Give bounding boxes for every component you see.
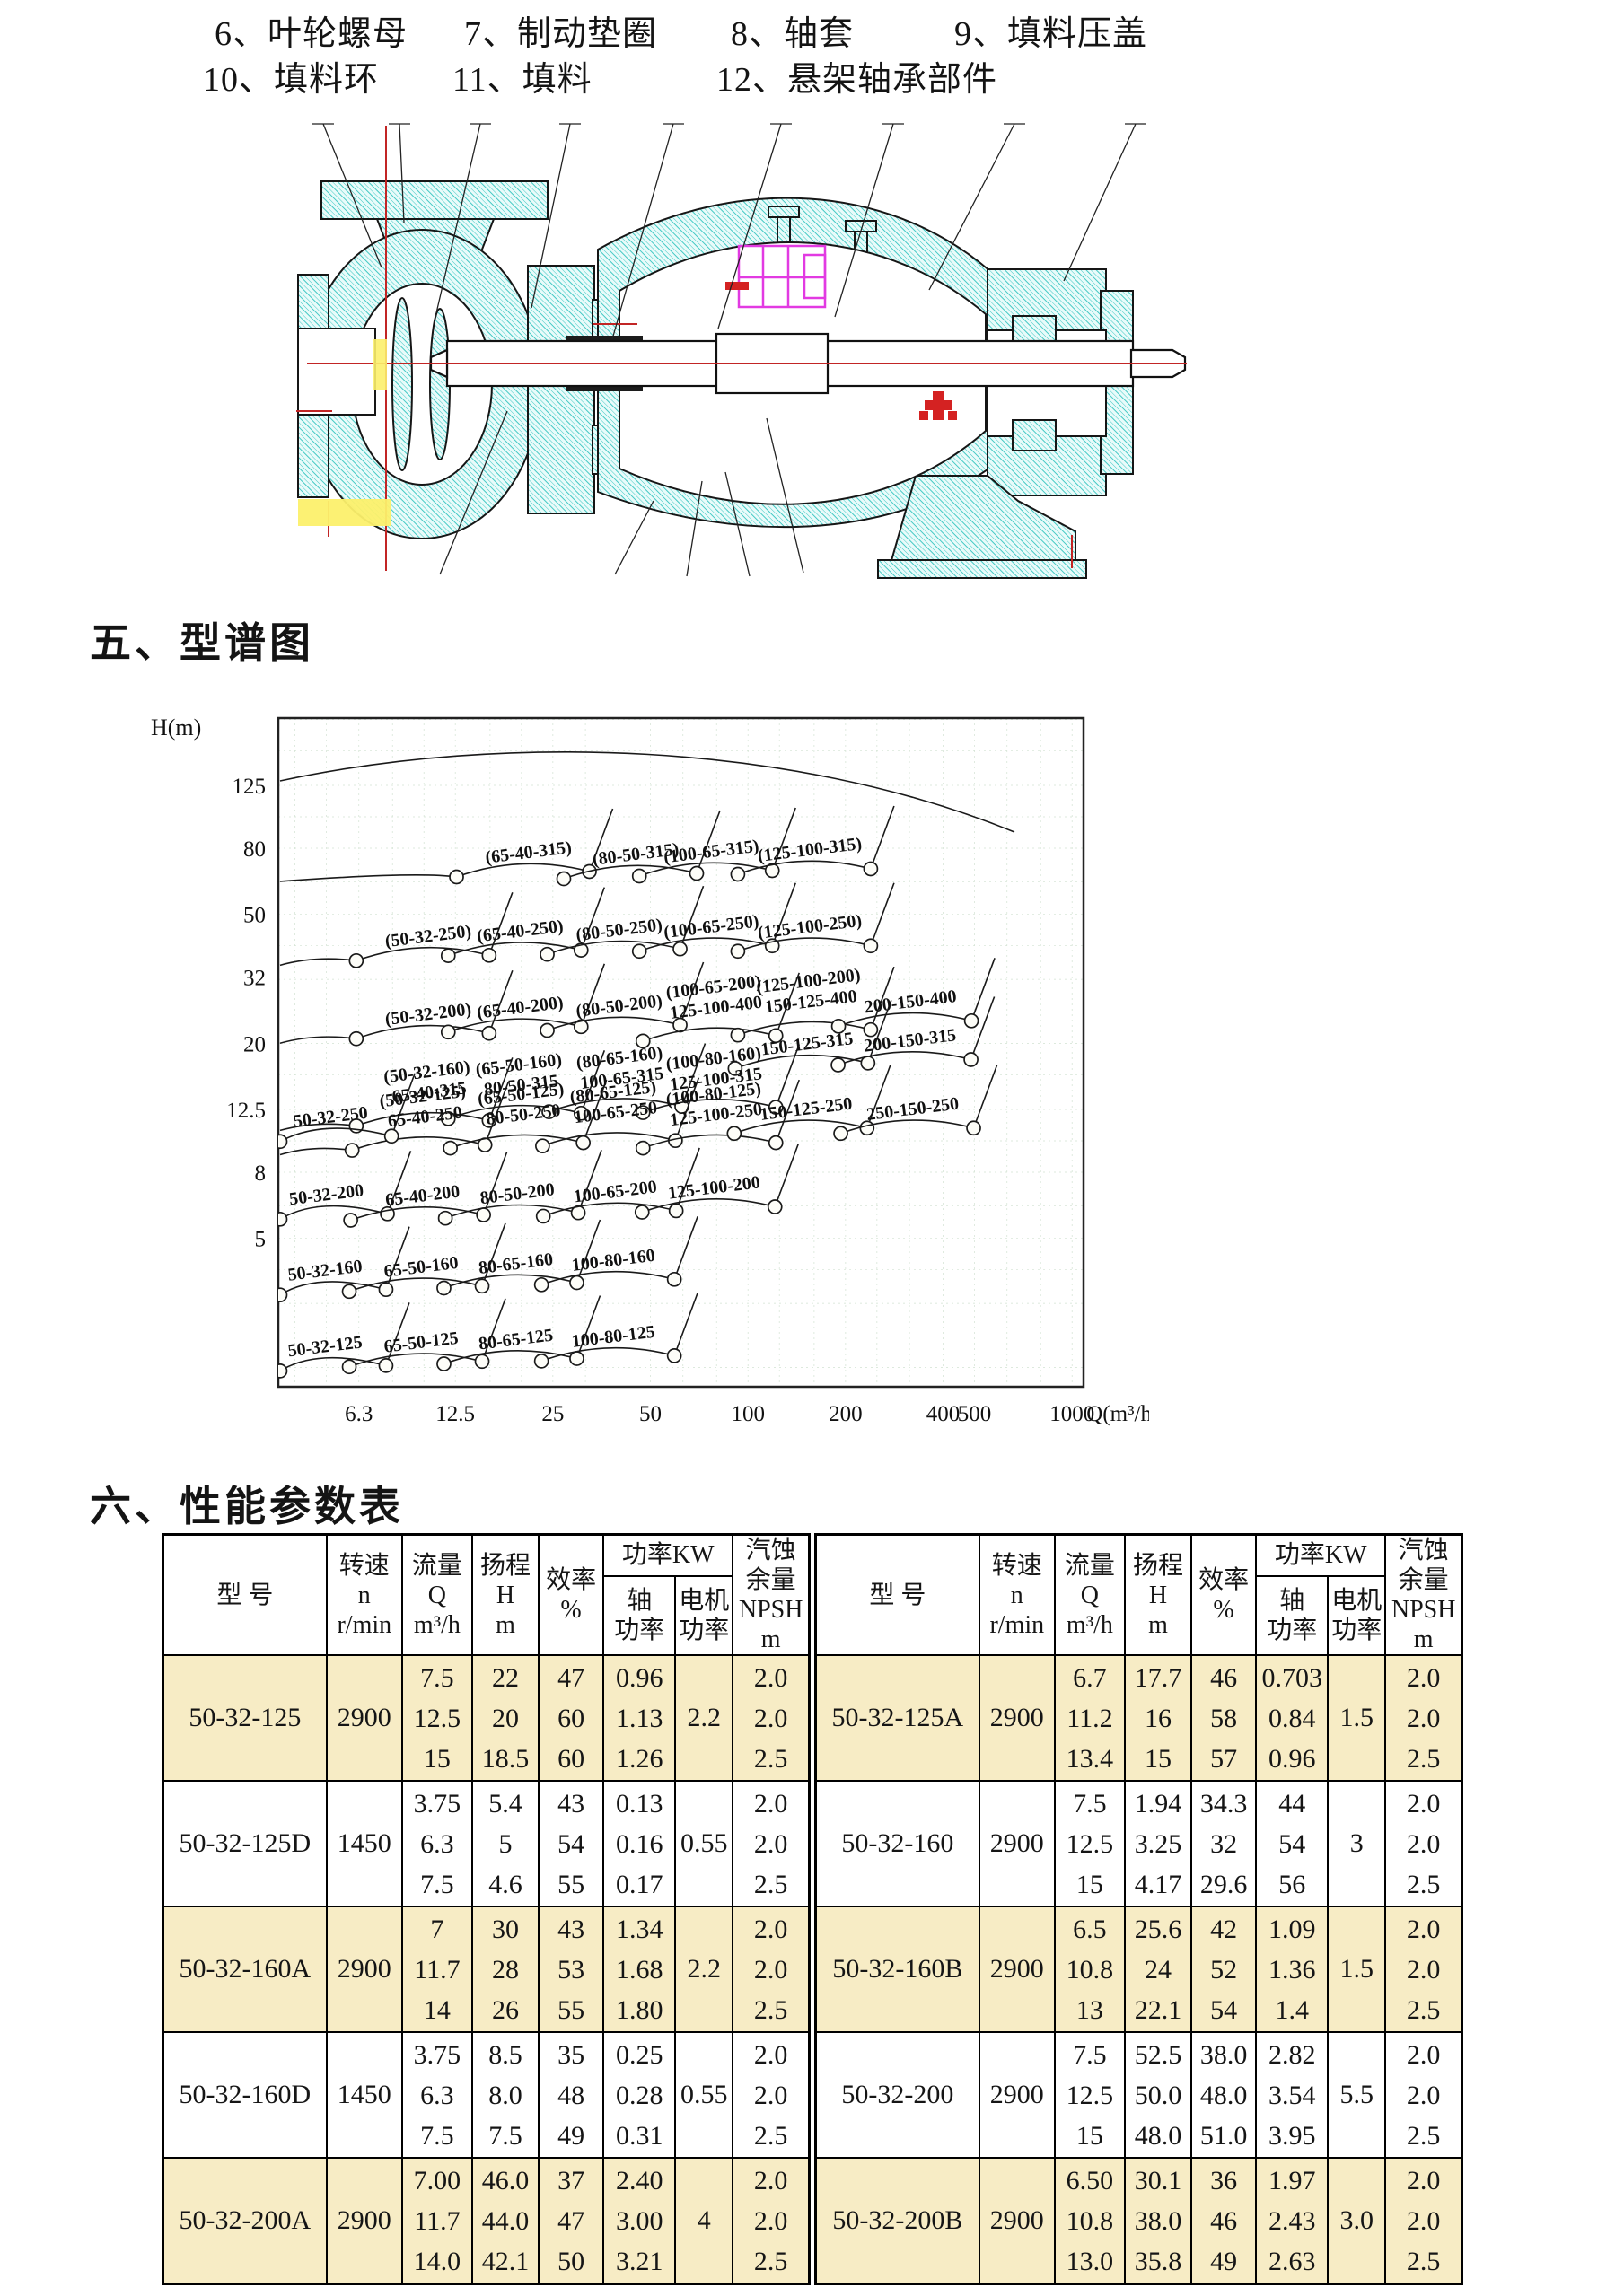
- cell-shaft-power-value: 0.96: [1257, 1739, 1327, 1779]
- cell-motor-power: 1.5: [1328, 1906, 1385, 2032]
- cell-model: 50-32-160A: [163, 1906, 327, 2032]
- y-axis-tick-label: 50: [243, 904, 266, 928]
- parts-list-item: 11、填料: [452, 51, 593, 101]
- catalog-page: { "parts_list": { "line1": ["6、叶轮螺母", "7…: [0, 0, 1624, 2296]
- cell-npsh: 2.02.02.5: [733, 1781, 809, 1906]
- cell-flow: 3.756.37.5: [402, 1781, 472, 1906]
- col-header-shaft-power: 轴 功率: [1256, 1576, 1328, 1655]
- cell-flow-value: 11.7: [403, 1950, 471, 1990]
- y-axis-tick-label: 5: [255, 1228, 267, 1252]
- cell-shaft-power-value: 2.43: [1257, 2201, 1327, 2241]
- cell-npsh: 2.02.02.5: [1385, 2032, 1462, 2158]
- cell-motor-power: 0.55: [675, 2032, 733, 2158]
- cell-head: 46.044.042.1: [472, 2158, 539, 2283]
- cell-efficiency-value: 47: [540, 2201, 602, 2241]
- col-header-npsh: 汽蚀 余量 NPSH m: [1385, 1535, 1462, 1656]
- cell-flow: 3.756.37.5: [402, 2032, 472, 2158]
- cell-efficiency-value: 51.0: [1192, 2116, 1255, 2156]
- cell-shaft-power: 0.250.280.31: [603, 2032, 675, 2158]
- col-header-flow: 流量 Q m³/h: [402, 1535, 472, 1656]
- cell-npsh-value: 2.0: [1386, 2201, 1461, 2241]
- cell-npsh-value: 2.5: [1386, 1990, 1461, 2030]
- cell-shaft-power-value: 3.54: [1257, 2075, 1327, 2116]
- cell-flow-value: 15: [403, 1739, 471, 1779]
- cell-head-value: 35.8: [1126, 2241, 1190, 2282]
- yellow-highlight-bottom: [298, 499, 391, 526]
- table-row: 50-32-160A2900711.7143028264353551.341.6…: [163, 1906, 810, 2032]
- cell-efficiency-value: 43: [540, 1909, 602, 1950]
- cell-flow-value: 7.5: [1056, 2035, 1124, 2075]
- parts-list-item: 9、填料压盖: [954, 5, 1147, 55]
- cell-npsh-value: 2.5: [733, 1739, 808, 1779]
- cell-efficiency: 425254: [1191, 1906, 1256, 2032]
- performance-table-left: 型 号 转速 n r/min 流量 Q m³/h 扬程 H m 效率 % 功率K…: [162, 1533, 811, 2285]
- cell-efficiency-value: 35: [540, 2035, 602, 2075]
- y-axis-tick-label: 20: [243, 1032, 266, 1056]
- cell-shaft-power-value: 3.95: [1257, 2116, 1327, 2156]
- cell-efficiency: 435455: [539, 1781, 603, 1906]
- cell-model: 50-32-160: [816, 1781, 979, 1906]
- cell-efficiency-value: 60: [540, 1739, 602, 1779]
- yellow-highlight-eye: [373, 339, 387, 390]
- cell-shaft-power-value: 3.21: [604, 2241, 674, 2282]
- cell-motor-power: 5.5: [1328, 2032, 1385, 2158]
- cell-efficiency: 476060: [539, 1655, 603, 1781]
- cell-efficiency: 364649: [1191, 2158, 1256, 2283]
- cell-npsh-value: 2.5: [1386, 1864, 1461, 1905]
- cell-shaft-power-value: 44: [1257, 1783, 1327, 1824]
- cell-speed: 2900: [979, 2158, 1055, 2283]
- cell-efficiency: 34.33229.6: [1191, 1781, 1256, 1906]
- cell-efficiency-value: 60: [540, 1698, 602, 1739]
- cell-head-value: 25.6: [1126, 1909, 1190, 1950]
- cell-shaft-power-value: 0.16: [604, 1824, 674, 1864]
- cell-flow-value: 11.2: [1056, 1698, 1124, 1739]
- x-axis-tick-label: 6.3: [345, 1402, 373, 1426]
- cell-head-value: 20: [473, 1698, 538, 1739]
- cell-flow: 711.714: [402, 1906, 472, 2032]
- cell-shaft-power-value: 1.36: [1257, 1950, 1327, 1990]
- cell-motor-power: 2.2: [675, 1906, 733, 2032]
- cell-flow-value: 3.75: [403, 2035, 471, 2075]
- table-row: 50-32-125A29006.711.213.417.716154658570…: [816, 1655, 1462, 1781]
- y-axis-tick-label: 80: [243, 837, 266, 862]
- cell-shaft-power-value: 2.63: [1257, 2241, 1327, 2282]
- cell-head: 8.58.07.5: [472, 2032, 539, 2158]
- cell-head: 25.62422.1: [1125, 1906, 1191, 2032]
- cell-head: 1.943.254.17: [1125, 1781, 1191, 1906]
- cell-head-value: 5.4: [473, 1783, 538, 1824]
- parts-list-item: 8、轴套: [731, 5, 854, 55]
- cell-efficiency-value: 34.3: [1192, 1783, 1255, 1824]
- cell-npsh-value: 2.0: [1386, 1658, 1461, 1698]
- cell-head-value: 42.1: [473, 2241, 538, 2282]
- cell-npsh: 2.02.02.5: [733, 1906, 809, 2032]
- cell-head-value: 26: [473, 1990, 538, 2030]
- cell-efficiency-value: 58: [1192, 1698, 1255, 1739]
- cell-shaft-power-value: 54: [1257, 1824, 1327, 1864]
- cell-npsh: 2.02.02.5: [1385, 1781, 1462, 1906]
- cell-flow-value: 12.5: [1056, 1824, 1124, 1864]
- table-row: 50-32-200A29007.0011.714.046.044.042.137…: [163, 2158, 810, 2283]
- cell-flow-value: 13.0: [1056, 2241, 1124, 2282]
- col-header-speed: 转速 n r/min: [327, 1535, 402, 1656]
- cell-speed: 1450: [327, 2032, 402, 2158]
- cell-flow-value: 10.8: [1056, 1950, 1124, 1990]
- cell-shaft-power-value: 2.82: [1257, 2035, 1327, 2075]
- performance-section-title: 六、性能参数表: [90, 1474, 404, 1533]
- cell-head-value: 48.0: [1126, 2116, 1190, 2156]
- cell-efficiency-value: 38.0: [1192, 2035, 1255, 2075]
- cell-flow-value: 7.5: [1056, 1783, 1124, 1824]
- cell-efficiency-value: 48: [540, 2075, 602, 2116]
- cell-head-value: 22: [473, 1658, 538, 1698]
- cell-head-value: 30.1: [1126, 2160, 1190, 2201]
- cell-shaft-power-value: 0.703: [1257, 1658, 1327, 1698]
- cell-head-value: 50.0: [1126, 2075, 1190, 2116]
- table-row: 50-32-16029007.512.5151.943.254.1734.332…: [816, 1781, 1462, 1906]
- cell-head-value: 8.5: [473, 2035, 538, 2075]
- y-axis-tick-label: 32: [243, 967, 266, 991]
- cell-model: 50-32-125A: [816, 1655, 979, 1781]
- cell-shaft-power-value: 1.13: [604, 1698, 674, 1739]
- parts-list-item: 7、制动垫圈: [464, 5, 657, 55]
- x-axis-unit-label: Q(m³/h): [1086, 1402, 1149, 1426]
- col-header-flow: 流量 Q m³/h: [1055, 1535, 1125, 1656]
- cell-shaft-power-value: 1.34: [604, 1909, 674, 1950]
- cell-motor-power: 2.2: [675, 1655, 733, 1781]
- cell-npsh-value: 2.0: [1386, 2160, 1461, 2201]
- col-header-motor-power: 电机 功率: [675, 1576, 733, 1655]
- cell-head-value: 8.0: [473, 2075, 538, 2116]
- cell-efficiency-value: 52: [1192, 1950, 1255, 1990]
- cell-head-value: 7.5: [473, 2116, 538, 2156]
- cell-flow-value: 7.5: [403, 1658, 471, 1698]
- pump-cross-section-diagram: [296, 115, 1194, 582]
- cell-shaft-power-value: 1.26: [604, 1739, 674, 1779]
- cell-npsh: 2.02.02.5: [733, 2158, 809, 2283]
- cell-head-value: 46.0: [473, 2160, 538, 2201]
- cell-shaft-power: 2.403.003.21: [603, 2158, 675, 2283]
- cell-shaft-power: 1.341.681.80: [603, 1906, 675, 2032]
- cell-model: 50-32-125: [163, 1655, 327, 1781]
- cell-npsh-value: 2.0: [1386, 1698, 1461, 1739]
- col-header-efficiency: 效率 %: [1191, 1535, 1256, 1656]
- table-row: 50-32-200B29006.5010.813.030.138.035.836…: [816, 2158, 1462, 2283]
- cell-npsh: 2.02.02.5: [1385, 1655, 1462, 1781]
- cell-efficiency: 465857: [1191, 1655, 1256, 1781]
- cell-npsh-value: 2.0: [1386, 2075, 1461, 2116]
- cell-efficiency-value: 50: [540, 2241, 602, 2282]
- cell-head-value: 18.5: [473, 1739, 538, 1779]
- chart-cell-label: 50-32-200: [288, 1180, 364, 1209]
- cell-head-value: 3.25: [1126, 1824, 1190, 1864]
- table-body-left: 50-32-12529007.512.515222018.54760600.96…: [163, 1655, 810, 2284]
- cell-npsh-value: 2.0: [1386, 2035, 1461, 2075]
- cell-efficiency: 38.048.051.0: [1191, 2032, 1256, 2158]
- cell-efficiency: 374750: [539, 2158, 603, 2283]
- cell-efficiency-value: 46: [1192, 2201, 1255, 2241]
- cell-shaft-power-value: 1.68: [604, 1950, 674, 1990]
- cell-flow-value: 7.5: [403, 1864, 471, 1905]
- cell-efficiency-value: 53: [540, 1950, 602, 1990]
- cell-speed: 2900: [327, 1655, 402, 1781]
- cell-head-value: 44.0: [473, 2201, 538, 2241]
- cell-model: 50-32-200: [816, 2032, 979, 2158]
- cell-head-value: 4.6: [473, 1864, 538, 1905]
- cell-efficiency-value: 49: [1192, 2241, 1255, 2282]
- cell-head-value: 38.0: [1126, 2201, 1190, 2241]
- cell-speed: 2900: [979, 1655, 1055, 1781]
- cell-head-value: 22.1: [1126, 1990, 1190, 2030]
- cell-shaft-power-value: 0.84: [1257, 1698, 1327, 1739]
- cell-model: 50-32-160D: [163, 2032, 327, 2158]
- cell-shaft-power: 445456: [1256, 1781, 1328, 1906]
- cell-flow-value: 13.4: [1056, 1739, 1124, 1779]
- y-axis-tick-label: 12.5: [226, 1099, 266, 1123]
- parts-list-item: 10、填料环: [203, 51, 379, 101]
- cell-efficiency-value: 42: [1192, 1909, 1255, 1950]
- cell-efficiency-value: 47: [540, 1658, 602, 1698]
- cell-flow-value: 6.3: [403, 1824, 471, 1864]
- cell-shaft-power-value: 1.09: [1257, 1909, 1327, 1950]
- x-axis-tick-label: 50: [639, 1402, 662, 1426]
- cell-npsh-value: 2.5: [1386, 2116, 1461, 2156]
- cell-efficiency-value: 57: [1192, 1739, 1255, 1779]
- x-axis-tick-label: 500: [958, 1402, 992, 1426]
- cell-speed: 2900: [979, 2032, 1055, 2158]
- cell-flow: 7.512.515: [1055, 1781, 1125, 1906]
- cell-head-value: 24: [1126, 1950, 1190, 1990]
- parts-list-item: 12、悬架轴承部件: [716, 51, 997, 101]
- cell-npsh-value: 2.5: [1386, 2241, 1461, 2282]
- col-header-shaft-power: 轴 功率: [603, 1576, 675, 1655]
- cell-flow: 6.510.813: [1055, 1906, 1125, 2032]
- cell-flow-value: 10.8: [1056, 2201, 1124, 2241]
- cell-flow-value: 13: [1056, 1990, 1124, 2030]
- cell-efficiency-value: 46: [1192, 1658, 1255, 1698]
- cell-flow-value: 14.0: [403, 2241, 471, 2282]
- cell-model: 50-32-200B: [816, 2158, 979, 2283]
- chart-cell-label: 50-32-160: [286, 1257, 363, 1285]
- cell-head-value: 1.94: [1126, 1783, 1190, 1824]
- cell-motor-power: 1.5: [1328, 1655, 1385, 1781]
- cell-speed: 2900: [979, 1906, 1055, 2032]
- spectrum-section-title: 五、型谱图: [90, 610, 314, 670]
- cell-motor-power: 3.0: [1328, 2158, 1385, 2283]
- performance-table-wrap: 型 号 转速 n r/min 流量 Q m³/h 扬程 H m 效率 % 功率K…: [162, 1533, 1463, 2285]
- cell-flow-value: 7.5: [403, 2116, 471, 2156]
- cell-head-value: 5: [473, 1824, 538, 1864]
- cell-flow-value: 6.7: [1056, 1658, 1124, 1698]
- cell-shaft-power: 1.972.432.63: [1256, 2158, 1328, 2283]
- cell-shaft-power-value: 1.4: [1257, 1990, 1327, 2030]
- cell-speed: 2900: [979, 1781, 1055, 1906]
- y-axis-tick-label: 8: [255, 1161, 267, 1186]
- cell-flow-value: 12.5: [1056, 2075, 1124, 2116]
- col-header-npsh: 汽蚀 余量 NPSH m: [733, 1535, 809, 1656]
- cell-npsh: 2.02.02.5: [1385, 2158, 1462, 2283]
- table-row: 50-32-20029007.512.51552.550.048.038.048…: [816, 2032, 1462, 2158]
- col-header-model: 型 号: [163, 1535, 327, 1656]
- cell-efficiency: 354849: [539, 2032, 603, 2158]
- col-header-head: 扬程 H m: [1125, 1535, 1191, 1656]
- cell-shaft-power-value: 0.17: [604, 1864, 674, 1905]
- cell-shaft-power-value: 0.13: [604, 1783, 674, 1824]
- cell-model: 50-32-200A: [163, 2158, 327, 2283]
- cell-flow-value: 15: [1056, 2116, 1124, 2156]
- cell-npsh-value: 2.5: [1386, 1739, 1461, 1779]
- col-header-head: 扬程 H m: [472, 1535, 539, 1656]
- cell-speed: 2900: [327, 1906, 402, 2032]
- cell-npsh-value: 2.0: [733, 1698, 808, 1739]
- cell-npsh-value: 2.0: [733, 2160, 808, 2201]
- cell-head: 5.454.6: [472, 1781, 539, 1906]
- chart-cell-label: 65-50-160: [382, 1253, 459, 1282]
- cell-npsh: 2.02.02.5: [733, 1655, 809, 1781]
- performance-table-right: 型 号 转速 n r/min 流量 Q m³/h 扬程 H m 效率 % 功率K…: [814, 1533, 1463, 2285]
- cell-npsh-value: 2.0: [733, 1658, 808, 1698]
- cell-shaft-power-value: 0.28: [604, 2075, 674, 2116]
- cell-head-value: 16: [1126, 1698, 1190, 1739]
- cell-shaft-power: 0.7030.840.96: [1256, 1655, 1328, 1781]
- cell-shaft-power-value: 0.31: [604, 2116, 674, 2156]
- chart-cell-label: (100-65-200)125-100-400: [665, 972, 765, 1024]
- cell-flow-value: 14: [403, 1990, 471, 2030]
- cell-head: 222018.5: [472, 1655, 539, 1781]
- cell-efficiency-value: 29.6: [1192, 1864, 1255, 1905]
- chart-cell-label: 80-65-160: [478, 1249, 554, 1278]
- col-header-power: 功率KW: [603, 1535, 733, 1576]
- cell-flow-value: 3.75: [403, 1783, 471, 1824]
- table-row: 50-32-125D14503.756.37.55.454.64354550.1…: [163, 1781, 810, 1906]
- cell-flow-value: 6.50: [1056, 2160, 1124, 2201]
- cell-flow: 7.0011.714.0: [402, 2158, 472, 2283]
- cell-npsh-value: 2.0: [733, 1824, 808, 1864]
- cell-efficiency-value: 54: [1192, 1990, 1255, 2030]
- chart-cell-label: 80-65-125: [478, 1326, 554, 1354]
- cell-head-value: 17.7: [1126, 1658, 1190, 1698]
- cell-speed: 2900: [327, 2158, 402, 2283]
- cell-shaft-power-value: 0.96: [604, 1658, 674, 1698]
- chart-cell-label: 65-50-125: [382, 1328, 459, 1357]
- table-row: 50-32-160B29006.510.81325.62422.14252541…: [816, 1906, 1462, 2032]
- cell-head: 30.138.035.8: [1125, 2158, 1191, 2283]
- cell-npsh-value: 2.5: [733, 1864, 808, 1905]
- cell-motor-power: 4: [675, 2158, 733, 2283]
- cell-shaft-power: 2.823.543.95: [1256, 2032, 1328, 2158]
- cell-head-value: 28: [473, 1950, 538, 1990]
- cell-head: 17.71615: [1125, 1655, 1191, 1781]
- table-row: 50-32-160D14503.756.37.58.58.07.53548490…: [163, 2032, 810, 2158]
- cell-shaft-power-value: 1.97: [1257, 2160, 1327, 2201]
- cell-npsh-value: 2.5: [733, 1990, 808, 2030]
- cell-npsh-value: 2.0: [733, 2075, 808, 2116]
- cell-efficiency-value: 37: [540, 2160, 602, 2201]
- cell-head-value: 30: [473, 1909, 538, 1950]
- cell-efficiency-value: 49: [540, 2116, 602, 2156]
- parts-list-item: 6、叶轮螺母: [215, 5, 408, 55]
- cell-efficiency-value: 55: [540, 1990, 602, 2030]
- cell-npsh-value: 2.0: [1386, 1909, 1461, 1950]
- cell-shaft-power: 0.961.131.26: [603, 1655, 675, 1781]
- cell-efficiency-value: 48.0: [1192, 2075, 1255, 2116]
- chart-cell-label: 65-40-200: [384, 1181, 461, 1210]
- cell-npsh: 2.02.02.5: [1385, 1906, 1462, 2032]
- cell-model: 50-32-160B: [816, 1906, 979, 2032]
- cell-shaft-power: 1.091.361.4: [1256, 1906, 1328, 2032]
- col-header-model: 型 号: [816, 1535, 979, 1656]
- col-header-motor-power: 电机 功率: [1328, 1576, 1385, 1655]
- cell-efficiency-value: 32: [1192, 1824, 1255, 1864]
- col-header-efficiency: 效率 %: [539, 1535, 603, 1656]
- cell-flow-value: 7: [403, 1909, 471, 1950]
- cell-shaft-power-value: 3.00: [604, 2201, 674, 2241]
- cell-shaft-power: 0.130.160.17: [603, 1781, 675, 1906]
- cell-head-value: 15: [1126, 1739, 1190, 1779]
- cell-flow-value: 6.3: [403, 2075, 471, 2116]
- cell-head-value: 52.5: [1126, 2035, 1190, 2075]
- cell-efficiency-value: 55: [540, 1864, 602, 1905]
- type-spectrum-chart: H(m)1258050322012.5856.312.5255010020040…: [126, 696, 1149, 1450]
- cell-shaft-power-value: 1.80: [604, 1990, 674, 2030]
- cell-flow: 7.512.515: [1055, 2032, 1125, 2158]
- cell-model: 50-32-125D: [163, 1781, 327, 1906]
- cell-efficiency-value: 43: [540, 1783, 602, 1824]
- cell-efficiency-value: 36: [1192, 2160, 1255, 2201]
- y-axis-label: H(m): [151, 714, 201, 741]
- cell-efficiency: 435355: [539, 1906, 603, 2032]
- cell-npsh-value: 2.0: [733, 1783, 808, 1824]
- x-axis-tick-label: 400: [926, 1402, 961, 1426]
- x-axis-tick-label: 200: [829, 1402, 863, 1426]
- cell-npsh-value: 2.0: [1386, 1950, 1461, 1990]
- y-axis-tick-label: 125: [233, 775, 267, 799]
- chart-cell-label: 50-32-125: [286, 1332, 363, 1361]
- cell-efficiency-value: 54: [540, 1824, 602, 1864]
- cell-motor-power: 3: [1328, 1781, 1385, 1906]
- col-header-speed: 转速 n r/min: [979, 1535, 1055, 1656]
- cell-npsh-value: 2.0: [733, 1950, 808, 1990]
- cell-shaft-power-value: 2.40: [604, 2160, 674, 2201]
- cell-flow-value: 7.00: [403, 2160, 471, 2201]
- x-axis-tick-label: 12.5: [435, 1402, 475, 1426]
- cell-npsh-value: 2.0: [733, 2201, 808, 2241]
- cell-flow-value: 11.7: [403, 2201, 471, 2241]
- table-row: 50-32-12529007.512.515222018.54760600.96…: [163, 1655, 810, 1781]
- cell-head: 302826: [472, 1906, 539, 2032]
- cell-flow-value: 12.5: [403, 1698, 471, 1739]
- cell-flow-value: 15: [1056, 1864, 1124, 1905]
- x-axis-tick-label: 25: [541, 1402, 564, 1426]
- cell-head-value: 4.17: [1126, 1864, 1190, 1905]
- cell-npsh-value: 2.0: [1386, 1824, 1461, 1864]
- cell-npsh-value: 2.5: [733, 2241, 808, 2282]
- cell-motor-power: 0.55: [675, 1781, 733, 1906]
- col-header-power: 功率KW: [1256, 1535, 1385, 1576]
- cell-npsh-value: 2.0: [733, 1909, 808, 1950]
- cell-npsh-value: 2.5: [733, 2116, 808, 2156]
- cell-flow-value: 6.5: [1056, 1909, 1124, 1950]
- cell-npsh-value: 2.0: [1386, 1783, 1461, 1824]
- table-body-right: 50-32-125A29006.711.213.417.716154658570…: [816, 1655, 1462, 2284]
- cell-npsh: 2.02.02.5: [733, 2032, 809, 2158]
- cell-head: 52.550.048.0: [1125, 2032, 1191, 2158]
- x-axis-tick-label: 100: [731, 1402, 765, 1426]
- cell-speed: 1450: [327, 1781, 402, 1906]
- chart-cell-label: 80-50-200: [479, 1179, 556, 1208]
- cell-flow: 7.512.515: [402, 1655, 472, 1781]
